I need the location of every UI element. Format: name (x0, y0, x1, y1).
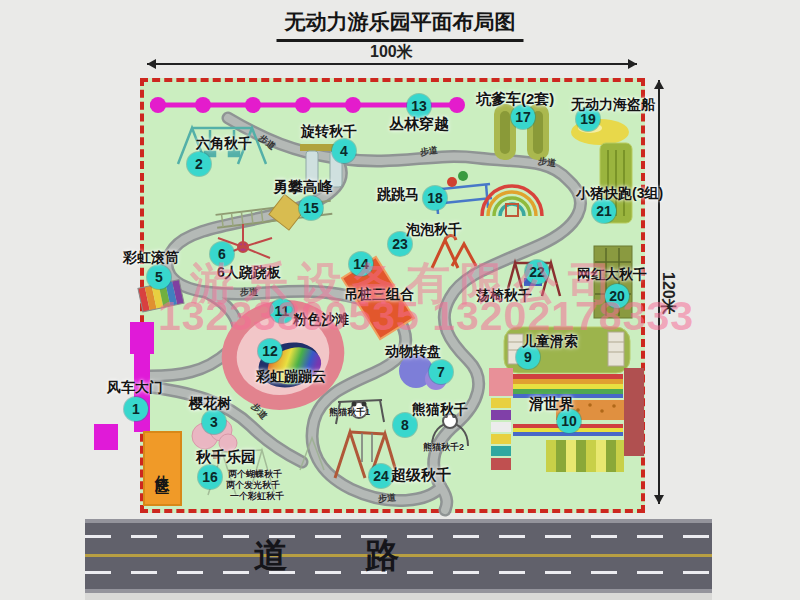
attraction-label-3: 樱花树 (189, 395, 231, 413)
attraction-label-9: 儿童滑索 (522, 333, 578, 351)
attraction-label-20: 网红大秋千 (577, 266, 647, 284)
attraction-badge-1: 1 (124, 397, 148, 421)
attraction-badge-22: 22 (525, 260, 549, 284)
attraction-badge-12: 12 (258, 339, 282, 363)
attraction-label-12: 彩虹蹦蹦云 (256, 368, 326, 386)
walkway-label: 步道 (377, 491, 396, 506)
attraction-badge-20: 20 (605, 284, 629, 308)
walkway-label: 步道 (537, 155, 557, 170)
attraction-label-4: 旋转秋千 (301, 123, 357, 141)
width-dimension-line (147, 63, 637, 65)
attraction-badge-7: 7 (429, 360, 453, 384)
swing-paradise-note: 一个彩虹秋千 (230, 490, 284, 503)
attraction-badge-11: 11 (270, 299, 294, 323)
attraction-label-5: 彩虹滚筒 (123, 249, 179, 267)
height-dimension-label: 120米 (657, 272, 678, 342)
walkway-label: 步道 (419, 144, 439, 159)
attraction-label-21: 小猪快跑(3组) (576, 185, 663, 203)
attraction-badge-2: 2 (187, 152, 211, 176)
attraction-label-2: 六角秋千 (196, 135, 252, 153)
park-map-screenshot: 无动力游乐园平面布局图 100米 120米 (0, 0, 800, 600)
attraction-badge-3: 3 (202, 410, 226, 434)
attraction-label-22: 荡椅秋千 (476, 287, 532, 305)
attraction-label-23: 泡泡秋千 (406, 221, 462, 239)
attraction-badge-18: 18 (423, 186, 447, 210)
rest-area: 休息区 (143, 431, 182, 506)
attraction-label-15: 勇攀高峰 (273, 178, 333, 197)
width-dimension-label: 100米 (370, 42, 413, 63)
attraction-label-16: 秋千乐园 (196, 448, 256, 467)
attraction-badge-15: 15 (299, 196, 323, 220)
attraction-label-19: 无动力海盗船 (571, 96, 655, 114)
attraction-label-1: 风车大门 (107, 379, 163, 397)
panda-swing-1-label: 熊猫秋千1 (329, 406, 370, 419)
rest-area-label: 休息区 (154, 464, 172, 473)
attraction-badge-6: 6 (210, 242, 234, 266)
attraction-label-8: 熊猫秋千 (412, 401, 468, 419)
road: 道 路 (85, 519, 712, 593)
attraction-label-18: 跳跳马 (377, 186, 419, 204)
walkway-label: 步道 (240, 286, 258, 299)
attraction-label-7: 动物转盘 (385, 343, 441, 361)
attraction-badge-24: 24 (369, 464, 393, 488)
attraction-label-14: 吊桩三组合 (344, 286, 414, 304)
panda-swing-2-label: 熊猫秋千2 (423, 441, 464, 454)
attraction-badge-14: 14 (349, 252, 373, 276)
attraction-label-6: 6人跷跷板 (217, 264, 281, 282)
attraction-label-10: 滑世界 (529, 395, 574, 414)
attraction-label-17: 坑爹车(2套) (476, 90, 554, 109)
attraction-badge-4: 4 (332, 139, 356, 163)
page-title: 无动力游乐园平面布局图 (277, 8, 524, 42)
attraction-label-24: 超级秋千 (391, 466, 451, 485)
attraction-label-13: 丛林穿越 (389, 115, 449, 134)
attraction-label-11: 粉色沙滩 (293, 311, 349, 329)
attraction-badge-5: 5 (147, 265, 171, 289)
attraction-badge-16: 16 (198, 465, 222, 489)
road-label: 道 路 (85, 523, 712, 589)
